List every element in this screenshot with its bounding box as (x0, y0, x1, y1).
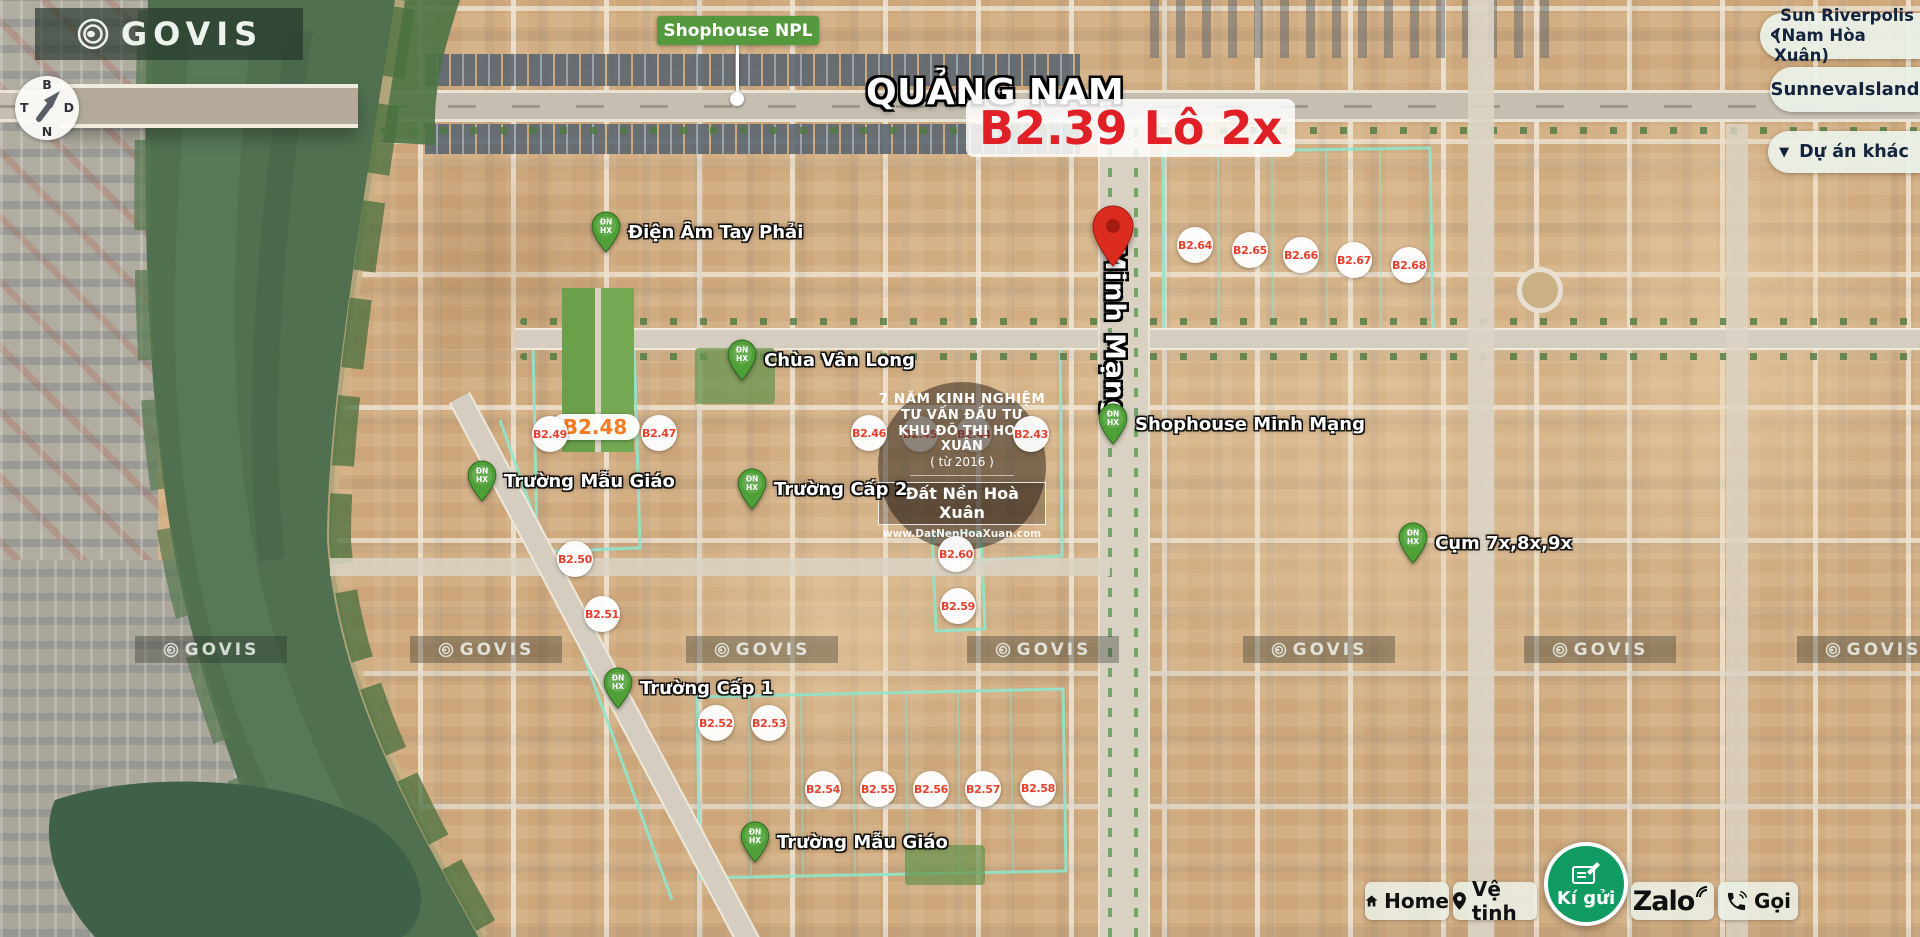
map-roundabout (1517, 267, 1563, 313)
compass[interactable]: B N T D (15, 76, 79, 140)
govis-watermark-icon (163, 642, 179, 658)
lot-marker-b2-43[interactable]: B2.43 (1013, 416, 1049, 452)
project-name-line2: (Nam Hòa Xuân) (1774, 26, 1920, 66)
place-pin-icon: ĐN HX (603, 667, 633, 709)
govis-logo: GOVIS (35, 8, 303, 60)
govis-watermark: GOVIS (135, 636, 287, 663)
compass-north-label: B (42, 79, 52, 92)
project-dropdown-other-projects[interactable]: ▼ Dự án khác (1768, 131, 1920, 173)
project-name: SunnevaIsland (1771, 79, 1920, 100)
lot-marker-b2-49[interactable]: B2.49 (532, 416, 568, 452)
home-button-label: Home (1384, 889, 1449, 913)
place-label: Shophouse Minh Mạng (1135, 414, 1365, 435)
place-pin-icon: ĐN HX (737, 468, 767, 510)
shophouse-npl-label[interactable]: Shophouse NPL (657, 16, 819, 45)
lot-marker-b2-68[interactable]: B2.68 (1391, 247, 1427, 283)
lot-marker-b2-52[interactable]: B2.52 (698, 705, 734, 741)
home-icon (1365, 891, 1378, 911)
lot-marker-b2-64[interactable]: B2.64 (1177, 227, 1213, 263)
place-marker-truong-mau-giao[interactable]: ĐN HXTrường Mẫu Giáo (740, 821, 948, 863)
map-road (1726, 124, 1748, 937)
place-marker-shophouse-minh-mang[interactable]: ĐN HXShophouse Minh Mạng (1098, 403, 1365, 445)
place-marker-cum-7x-8x-9x[interactable]: ĐN HXCụm 7x,8x,9x (1398, 522, 1572, 564)
govis-watermark: GOVIS (686, 636, 838, 663)
experience-badge: 7 NĂM KINH NGHIỆM TƯ VẤN ĐẦU TƯ KHU ĐÔ T… (878, 382, 1046, 550)
chevron-down-icon: ▼ (1779, 145, 1789, 160)
govis-watermark: GOVIS (1524, 636, 1676, 663)
badge-line-2: TƯ VẤN ĐẦU TƯ (901, 408, 1023, 424)
place-marker-chua-van-long[interactable]: ĐN HXChùa Vân Long (727, 339, 915, 381)
home-button[interactable]: Home (1365, 882, 1449, 920)
selected-lot-pin[interactable] (1090, 204, 1136, 272)
call-button[interactable]: Gọi (1718, 882, 1798, 920)
map-urban-area (0, 560, 300, 937)
lot-marker-b2-67[interactable]: B2.67 (1336, 242, 1372, 278)
lot-marker-b2-56[interactable]: B2.56 (913, 771, 949, 807)
lot-marker-b2-47[interactable]: B2.47 (641, 415, 677, 451)
call-button-label: Gọi (1754, 889, 1791, 913)
location-pin-icon (1453, 890, 1466, 912)
project-dropdown-label: Dự án khác (1799, 142, 1909, 162)
satellite-button-label: Vệ tinh (1472, 877, 1537, 925)
place-pin-icon: ĐN HX (727, 339, 757, 381)
map-road (1468, 0, 1494, 937)
place-label: Trường Mẫu Giáo (777, 832, 948, 853)
svg-text:HX: HX (749, 836, 761, 845)
lot-marker-b2-55[interactable]: B2.55 (860, 771, 896, 807)
zalo-button[interactable]: Zalo (1631, 882, 1714, 920)
zalo-signal-waves-icon (1696, 886, 1708, 898)
lot-marker-b2-65[interactable]: B2.65 (1232, 232, 1268, 268)
place-label: Trường Mẫu Giáo (504, 471, 675, 492)
compass-east-label: D (64, 102, 74, 115)
place-label: Trường Cấp 1 (640, 678, 773, 699)
svg-text:HX: HX (1107, 418, 1119, 427)
govis-watermark: GOVIS (967, 636, 1119, 663)
lot-marker-b2-50[interactable]: B2.50 (557, 541, 593, 577)
place-marker-truong-cap-2[interactable]: ĐN HXTrường Cấp 2 (737, 468, 907, 510)
place-pin-icon: ĐN HX (467, 460, 497, 502)
lot-marker-b2-59[interactable]: B2.59 (940, 588, 976, 624)
place-label: Điện Âm Tay Phải (628, 222, 803, 243)
consign-button-label: Kí gửi (1557, 888, 1615, 909)
map-road (330, 558, 1110, 576)
place-marker-dien-am-tay-phai[interactable]: ĐN HXĐiện Âm Tay Phải (591, 211, 803, 253)
project-button-sun-riverpolis[interactable]: ‹ Sun Riverpolis (Nam Hòa Xuân) (1760, 13, 1920, 59)
shophouse-npl-connector (736, 45, 739, 92)
watermark-text: GOVIS (185, 640, 260, 660)
map-stage: GOVIS GOVIS GOVIS GOVIS GOVIS GOVIS GOVI… (0, 0, 1920, 937)
lot-marker-b2-53[interactable]: B2.53 (751, 705, 787, 741)
phone-icon (1725, 890, 1748, 913)
svg-text:HX: HX (476, 475, 488, 484)
place-label: Chùa Vân Long (764, 350, 915, 371)
svg-text:HX: HX (1407, 537, 1419, 546)
svg-text:HX: HX (746, 483, 758, 492)
zalo-logo-text: Zalo (1633, 886, 1695, 917)
highlighted-lot-callout: B2.39 Lô 2x (966, 99, 1295, 157)
place-pin-icon: ĐN HX (1398, 522, 1428, 564)
badge-line-1: 7 NĂM KINH NGHIỆM (879, 391, 1046, 407)
place-pin-icon: ĐN HX (591, 211, 621, 253)
place-marker-truong-cap-1[interactable]: ĐN HXTrường Cấp 1 (603, 667, 773, 709)
compass-west-label: T (20, 102, 29, 115)
place-label: Trường Cấp 2 (774, 479, 907, 500)
chevron-left-icon: ‹ (1769, 19, 1780, 50)
badge-line-4: ( từ 2016 ) (930, 455, 994, 470)
govis-logo-text: GOVIS (121, 15, 263, 53)
place-pin-icon: ĐN HX (740, 821, 770, 863)
govis-logo-icon (75, 16, 111, 52)
lot-marker-b2-54[interactable]: B2.54 (805, 771, 841, 807)
svg-text:HX: HX (612, 682, 624, 691)
govis-watermark: GOVIS (1243, 636, 1395, 663)
lot-marker-b2-51[interactable]: B2.51 (584, 596, 620, 632)
lot-marker-b2-57[interactable]: B2.57 (965, 771, 1001, 807)
shophouse-npl-anchor-dot (730, 92, 744, 106)
lot-marker-b2-46[interactable]: B2.46 (851, 415, 887, 451)
satellite-button[interactable]: Vệ tinh (1453, 882, 1537, 920)
place-pin-icon: ĐN HX (1098, 403, 1128, 445)
govis-watermark: GOVIS (1797, 636, 1920, 663)
svg-text:HX: HX (736, 354, 748, 363)
lot-marker-b2-66[interactable]: B2.66 (1283, 237, 1319, 273)
project-name-line1: Sun Riverpolis (1780, 6, 1914, 26)
consign-form-icon (1571, 860, 1601, 886)
badge-divider (910, 475, 1014, 476)
red-pin-icon (1090, 204, 1136, 268)
place-label: Cụm 7x,8x,9x (1435, 533, 1572, 554)
place-marker-truong-mau-giao[interactable]: ĐN HXTrường Mẫu Giáo (467, 460, 675, 502)
govis-watermark: GOVIS (410, 636, 562, 663)
lot-marker-b2-58[interactable]: B2.58 (1020, 770, 1056, 806)
project-button-sunneva-island[interactable]: SunnevaIsland (1770, 67, 1920, 112)
compass-south-label: N (42, 126, 52, 139)
map-tree-row (520, 318, 1915, 325)
svg-text:HX: HX (600, 226, 612, 235)
map-bridge (58, 84, 358, 128)
map-road (515, 328, 1920, 350)
consign-button[interactable]: Kí gửi (1544, 842, 1628, 926)
lot-marker-b2-60[interactable]: B2.60 (938, 536, 974, 572)
